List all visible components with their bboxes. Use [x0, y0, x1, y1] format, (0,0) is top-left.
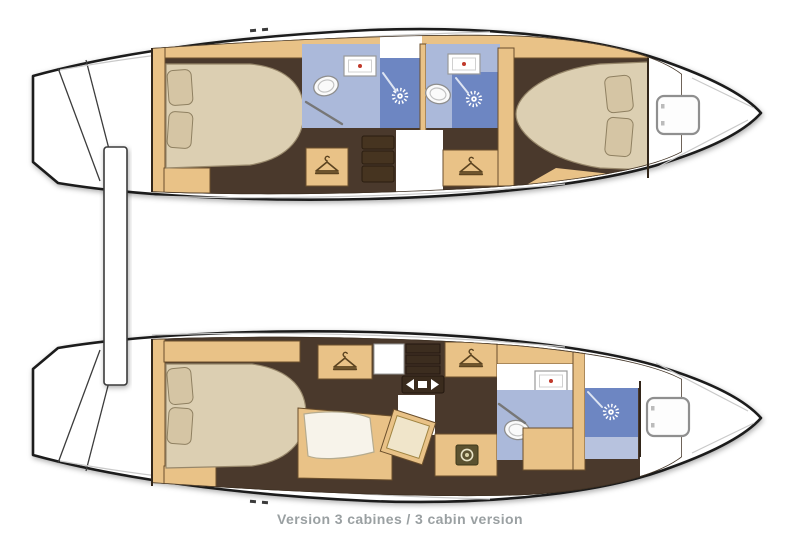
- wardrobe: [443, 150, 499, 186]
- starboard-forward-bathroom: [424, 44, 500, 128]
- shower-entry: [585, 437, 638, 459]
- pillow: [167, 69, 193, 106]
- shower-wall: [573, 352, 585, 470]
- lounge-seat: [298, 408, 392, 480]
- landing-floor: [396, 130, 443, 192]
- pillow: [167, 407, 193, 445]
- sink-icon: [344, 56, 376, 76]
- forward-cabin-wall: [498, 48, 514, 186]
- wardrobe: [445, 342, 497, 377]
- bathroom-divider: [420, 44, 426, 132]
- companionway-stairs: [362, 136, 394, 182]
- port-side-cabinets: [164, 341, 300, 362]
- starboard-aft-berth: [166, 64, 304, 168]
- starboard-cleats: [250, 28, 268, 32]
- bath-bench: [523, 428, 577, 470]
- companionway-steps: [402, 376, 444, 393]
- port-bathroom: [497, 342, 640, 470]
- port-hull: [33, 331, 761, 504]
- sink-icon: [448, 54, 480, 74]
- seat-cushion: [304, 412, 374, 459]
- port-interior: [152, 333, 682, 503]
- locker: [374, 344, 404, 374]
- shower-stall: [380, 58, 422, 128]
- port-aft-cabinet: [152, 339, 165, 486]
- aft-platform: [104, 147, 127, 385]
- floorplan-canvas: Version 3 cabines / 3 cabin version: [0, 0, 800, 533]
- deck-hatch-icon: [647, 398, 689, 436]
- sink-icon: [535, 371, 567, 391]
- wardrobe: [306, 148, 348, 186]
- drawer-stack: [406, 344, 440, 374]
- deck-hatch-icon: [657, 96, 699, 134]
- starboard-aft-cabinet: [152, 46, 165, 193]
- wardrobe: [318, 345, 372, 379]
- starboard-hull: [33, 28, 761, 200]
- starboard-aft-shelf: [164, 168, 210, 193]
- pillow: [166, 367, 193, 405]
- catamaran-floorplan-svg: [0, 0, 800, 533]
- pillow: [604, 117, 633, 157]
- desk-with-washer: [435, 434, 497, 476]
- washing-machine-icon: [456, 445, 478, 465]
- port-aft-berth: [166, 364, 306, 468]
- pillow: [604, 75, 634, 114]
- caption: Version 3 cabines / 3 cabin version: [0, 511, 800, 527]
- pillow: [167, 111, 193, 149]
- starboard-interior: [152, 28, 682, 200]
- port-cleats: [250, 500, 268, 504]
